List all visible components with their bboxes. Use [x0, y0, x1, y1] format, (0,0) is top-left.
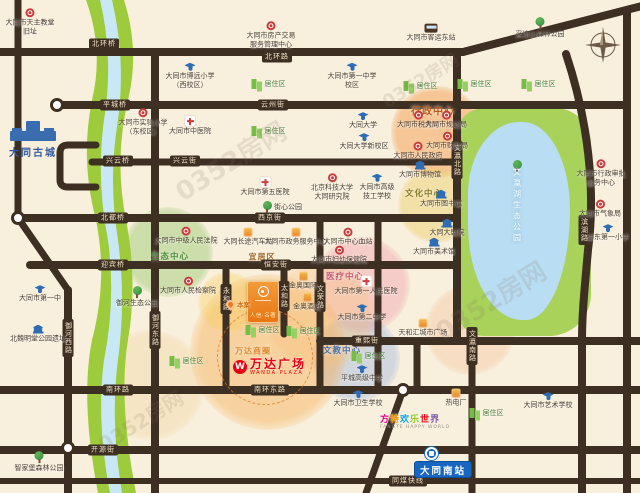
watermark-text: 0352房网	[167, 111, 292, 208]
watermark-layer: 0352房网0352房网0352房网0352房网	[0, 0, 640, 493]
watermark-text: 0352房网	[427, 251, 552, 348]
watermark-text: 0352房网	[377, 46, 464, 114]
datong-location-map: 行政中心文化中心生态中心医疗中心文教中心万达商圈宜居区北环桥北环路平城桥云州街兴…	[0, 0, 640, 493]
watermark-text: 0352房网	[92, 382, 189, 457]
